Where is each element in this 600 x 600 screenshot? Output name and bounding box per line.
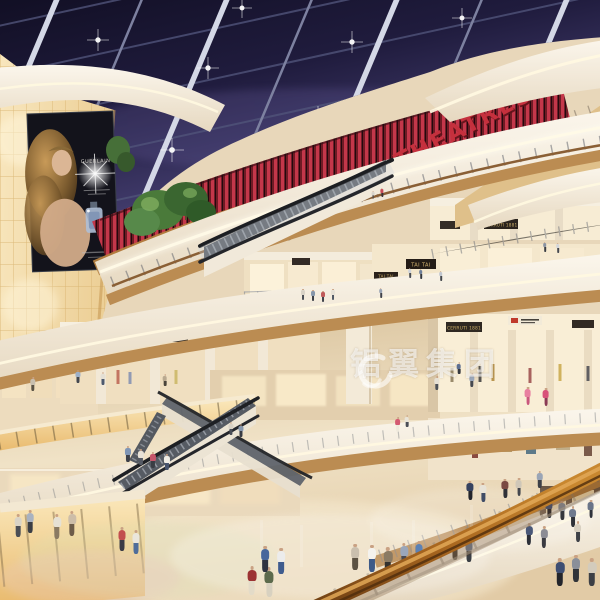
mall-atrium-rendering: GUERLAIN [0, 0, 600, 600]
foreground-railing [0, 0, 600, 600]
handrail-foreground [314, 462, 600, 600]
